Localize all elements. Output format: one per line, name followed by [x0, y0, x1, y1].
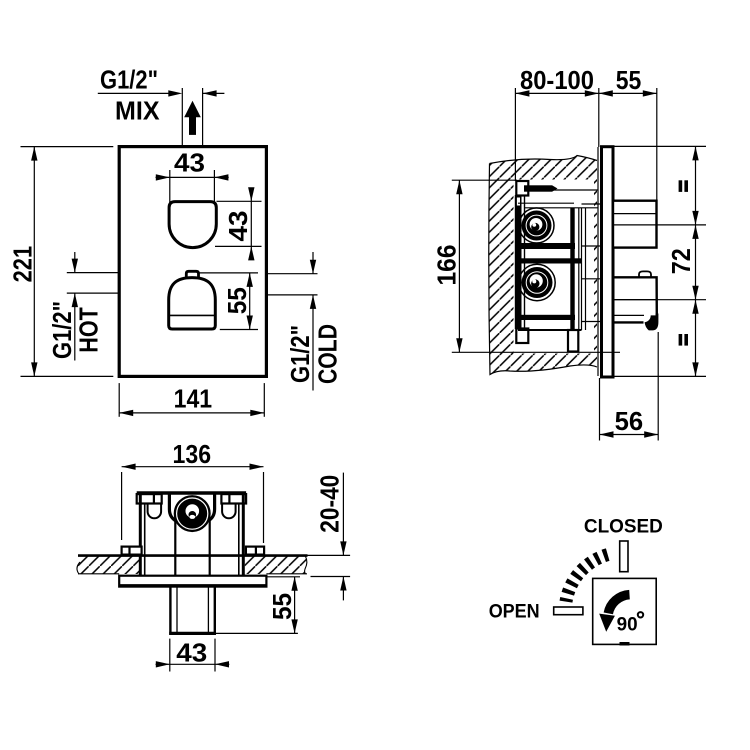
svg-text:MIX: MIX [115, 95, 160, 125]
svg-text:OPEN: OPEN [489, 602, 540, 623]
svg-text:90: 90 [617, 614, 638, 635]
svg-text:G1/2": G1/2" [285, 325, 315, 383]
svg-text:HOT: HOT [74, 307, 104, 353]
svg-text:43: 43 [174, 148, 205, 178]
svg-text:G1/2": G1/2" [47, 301, 77, 359]
svg-text:43: 43 [176, 637, 207, 667]
svg-text:141: 141 [174, 384, 213, 414]
svg-text:166: 166 [431, 245, 461, 286]
svg-text:221: 221 [8, 246, 38, 283]
svg-text:55: 55 [267, 593, 297, 620]
svg-text:55: 55 [222, 287, 252, 314]
svg-text:CLOSED: CLOSED [584, 516, 663, 537]
svg-text:136: 136 [173, 439, 212, 469]
svg-text:43: 43 [223, 210, 253, 241]
svg-text:G1/2": G1/2" [100, 65, 158, 95]
svg-text:20-40: 20-40 [315, 475, 345, 533]
svg-text:80-100: 80-100 [520, 65, 594, 95]
svg-text:COLD: COLD [313, 324, 343, 384]
svg-text:56: 56 [615, 406, 644, 436]
svg-text:55: 55 [616, 65, 642, 95]
svg-text:72: 72 [666, 248, 696, 274]
